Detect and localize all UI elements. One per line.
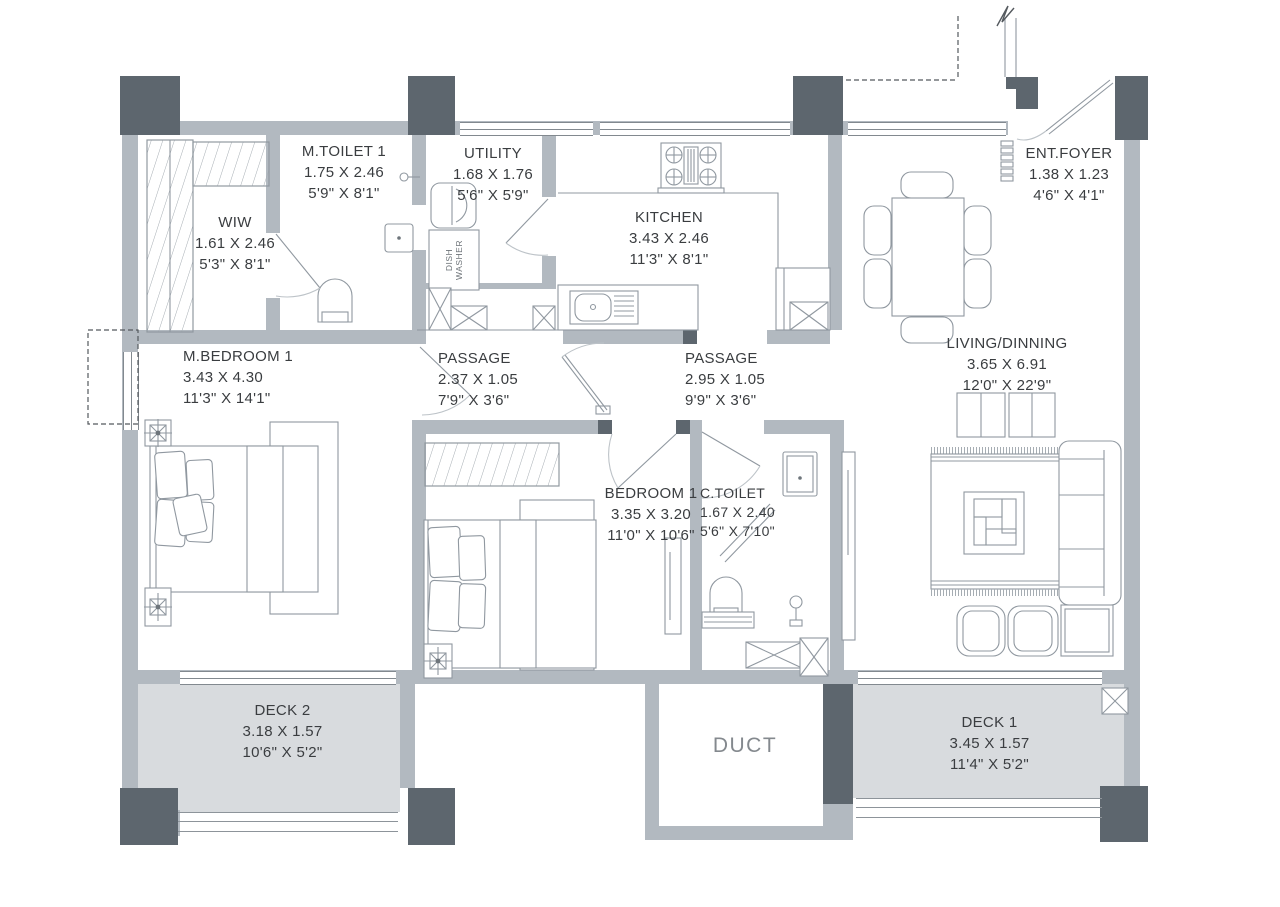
entrance-door [1017, 80, 1113, 140]
label-living-dining: LIVING/DINNING 3.65 X 6.91 12'0" X 22'9" [903, 333, 1111, 396]
label-duct: DUCT [700, 734, 790, 758]
room-dim-metric: 2.37 X 1.05 [438, 369, 558, 390]
label-deck-2: DECK 2 3.18 X 1.57 10'6" X 5'2" [205, 700, 360, 763]
room-dim-imperial: 5'9" X 8'1" [268, 183, 420, 204]
bedroom1-door [609, 434, 676, 488]
furniture-layer [0, 0, 1280, 907]
party-wall-break [846, 6, 1016, 80]
room-name: PASSAGE [438, 348, 558, 369]
floor-plan: M.TOILET 1 1.75 X 2.46 5'9" X 8'1" UTILI… [0, 0, 1280, 907]
room-dim-imperial: 11'3" X 14'1" [183, 388, 368, 409]
bedroom1-nightstand-lamp [424, 644, 452, 678]
room-dim-imperial: 5'3" X 8'1" [176, 254, 294, 275]
dish-washer-line2: WASHER [454, 230, 464, 290]
room-dim-imperial: 9'9" X 3'6" [685, 390, 805, 411]
room-dim-metric: 3.65 X 6.91 [903, 354, 1111, 375]
label-kitchen: KITCHEN 3.43 X 2.46 11'3" X 8'1" [580, 207, 758, 270]
room-name: ENT.FOYER [1014, 143, 1124, 164]
room-name: C.TOILET [700, 484, 810, 503]
deck1-corner-box [1102, 688, 1128, 714]
room-dim-imperial: 10'6" X 5'2" [205, 742, 360, 763]
nightstand-lamp-top [144, 419, 172, 447]
room-dim-metric: 2.95 X 1.05 [685, 369, 805, 390]
room-dim-imperial: 12'0" X 22'9" [903, 375, 1111, 396]
room-name: PASSAGE [685, 348, 805, 369]
label-wiw: WIW 1.61 X 2.46 5'3" X 8'1" [176, 212, 294, 275]
label-c-toilet: C.TOILET 1.67 X 2.40 5'6" X 7'10" [700, 484, 810, 541]
label-utility: UTILITY 1.68 X 1.76 5'6" X 5'9" [428, 143, 558, 206]
room-name: KITCHEN [580, 207, 758, 228]
utility-door [506, 199, 548, 255]
dining-set [864, 172, 991, 343]
room-dim-metric: 3.43 X 4.30 [183, 367, 368, 388]
label-m-toilet-1: M.TOILET 1 1.75 X 2.46 5'9" X 8'1" [268, 141, 420, 204]
gas-hob [658, 143, 724, 193]
room-dim-imperial: 7'9" X 3'6" [438, 390, 558, 411]
room-dim-metric: 1.61 X 2.46 [176, 233, 294, 254]
label-m-bedroom-1: M.BEDROOM 1 3.43 X 4.30 11'3" X 14'1" [183, 346, 368, 409]
room-name: M.TOILET 1 [268, 141, 420, 162]
nightstand-lamp-bottom [144, 588, 172, 626]
room-dim-metric: 3.45 X 1.57 [912, 733, 1067, 754]
room-dim-metric: 3.18 X 1.57 [205, 721, 360, 742]
room-dim-imperial: 5'6" X 7'10" [700, 522, 810, 541]
room-name: WIW [176, 212, 294, 233]
tv-unit-living [842, 452, 855, 640]
room-dim-metric: 3.43 X 2.46 [580, 228, 758, 249]
room-dim-metric: 1.68 X 1.76 [428, 164, 558, 185]
room-dim-imperial: 11'3" X 8'1" [580, 249, 758, 270]
ctoilet-shafts [746, 638, 828, 676]
room-dim-imperial: 11'4" X 5'2" [912, 754, 1067, 775]
room-name: DECK 1 [912, 712, 1067, 733]
coffee-table [964, 492, 1024, 554]
room-name: LIVING/DINNING [903, 333, 1111, 354]
room-name: M.BEDROOM 1 [183, 346, 368, 367]
bedroom1-tv-panel [665, 538, 681, 634]
room-dim-imperial: 5'6" X 5'9" [428, 185, 558, 206]
label-deck-1: DECK 1 3.45 X 1.57 11'4" X 5'2" [912, 712, 1067, 775]
label-ent-foyer: ENT.FOYER 1.38 X 1.23 4'6" X 4'1" [1014, 143, 1124, 206]
label-passage-2: PASSAGE 2.95 X 1.05 9'9" X 3'6" [685, 348, 805, 411]
room-name: UTILITY [428, 143, 558, 164]
room-dim-metric: 1.38 X 1.23 [1014, 164, 1124, 185]
side-tables [957, 393, 1055, 437]
passage-door [562, 343, 610, 414]
sofa [1059, 441, 1121, 605]
room-dim-metric: 1.75 X 2.46 [268, 162, 420, 183]
projection-dashed [88, 330, 138, 424]
dish-washer-line1: DISH [444, 230, 454, 290]
master-bed [150, 422, 338, 614]
label-dish-washer: DISH WASHER [429, 230, 479, 290]
label-passage-1: PASSAGE 2.37 X 1.05 7'9" X 3'6" [438, 348, 558, 411]
room-dim-imperial: 4'6" X 4'1" [1014, 185, 1124, 206]
bedroom1-wardrobe [425, 443, 559, 486]
room-name: DECK 2 [205, 700, 360, 721]
room-dim-metric: 1.67 X 2.40 [700, 503, 810, 522]
ottomans [957, 605, 1113, 656]
shoe-rack [1001, 141, 1013, 181]
